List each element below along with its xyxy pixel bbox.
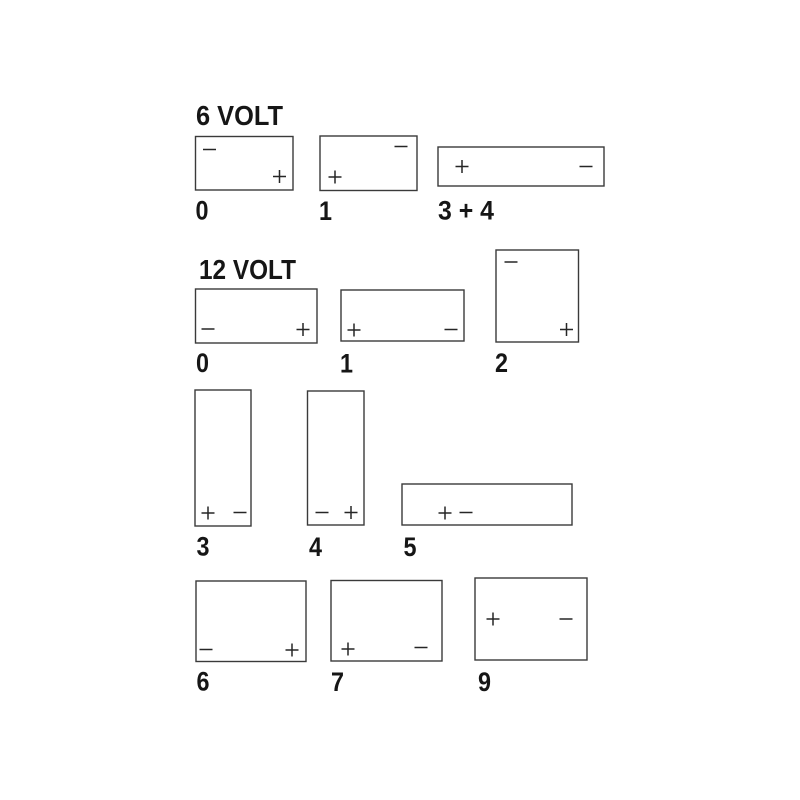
svg-text:0: 0: [196, 348, 209, 378]
svg-text:4: 4: [309, 532, 322, 562]
svg-text:7: 7: [331, 667, 344, 697]
svg-text:6 VOLT: 6 VOLT: [196, 100, 283, 131]
svg-text:1: 1: [340, 349, 353, 379]
svg-text:9: 9: [478, 667, 491, 697]
svg-text:2: 2: [495, 348, 508, 378]
svg-text:0: 0: [196, 196, 209, 226]
svg-text:5: 5: [404, 532, 417, 562]
svg-text:6: 6: [197, 667, 210, 697]
svg-text:3: 3: [197, 532, 210, 562]
svg-text:12 VOLT: 12 VOLT: [199, 254, 296, 285]
svg-text:1: 1: [319, 196, 332, 226]
svg-text:3 + 4: 3 + 4: [438, 196, 494, 226]
